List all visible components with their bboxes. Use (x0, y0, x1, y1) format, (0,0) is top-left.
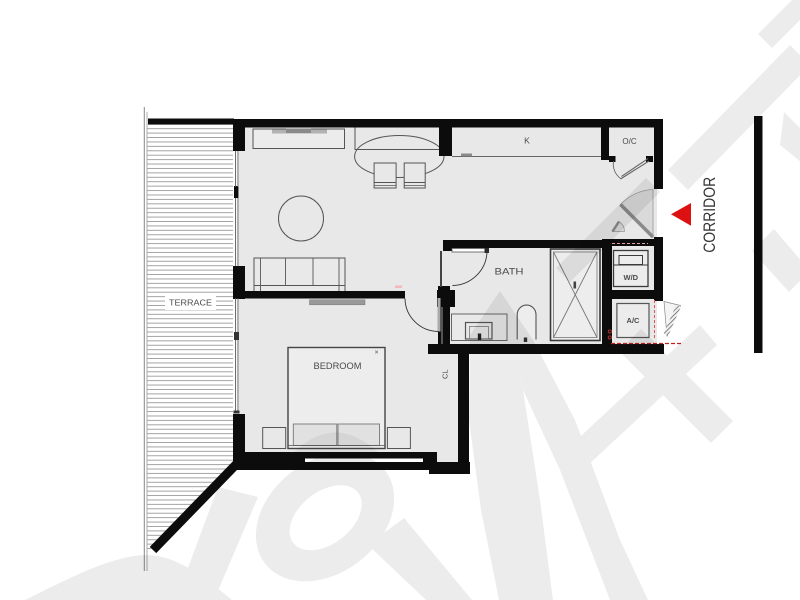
svg-text:CL: CL (441, 369, 450, 379)
svg-text:TERRACE: TERRACE (169, 298, 212, 308)
svg-text:×: × (374, 350, 378, 357)
svg-text:BATH: BATH (495, 267, 524, 278)
svg-text:K: K (524, 136, 530, 146)
svg-text:W/D: W/D (624, 273, 639, 282)
svg-text:BEDROOM: BEDROOM (314, 361, 362, 372)
svg-text:O/C: O/C (622, 137, 636, 146)
svg-text:CORRIDOR: CORRIDOR (700, 177, 719, 253)
svg-text:A/C: A/C (627, 316, 641, 325)
